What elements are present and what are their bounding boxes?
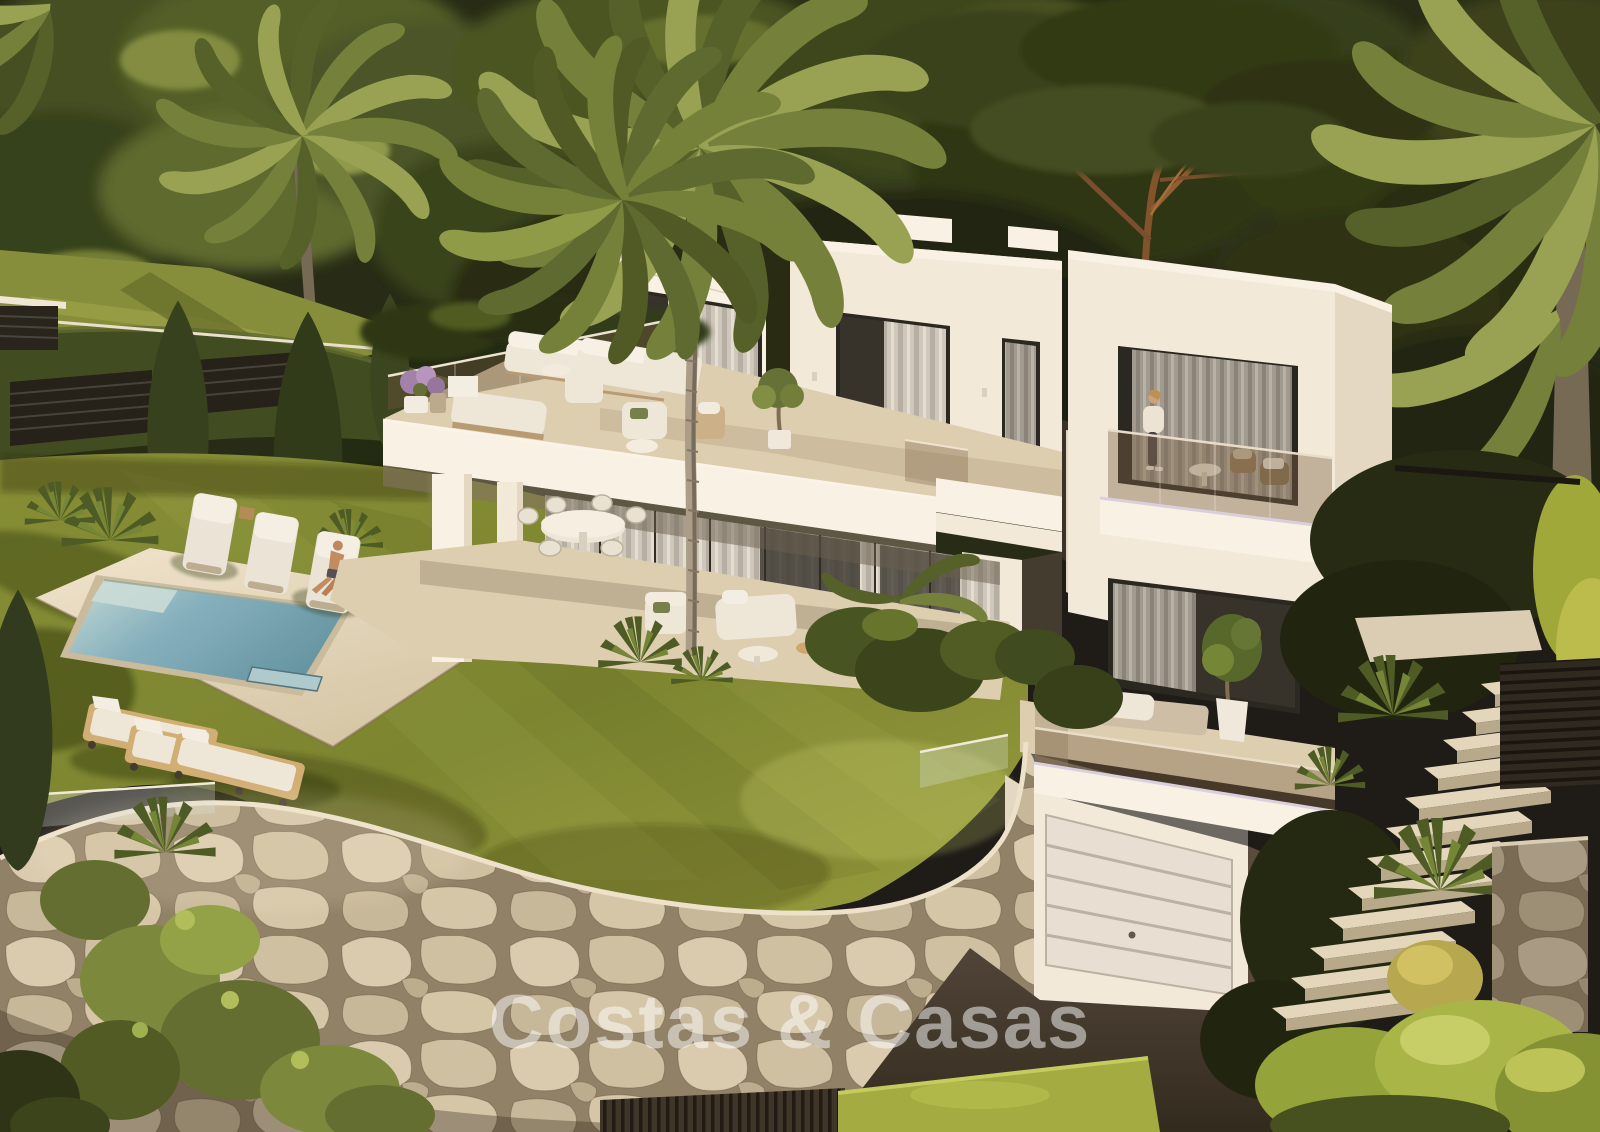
scene-canvas: Costas & Casas — [0, 0, 1600, 1132]
vignette — [0, 0, 1600, 1132]
watermark-text: Costas & Casas — [489, 980, 1092, 1065]
villa-render: Costas & Casas — [0, 0, 1600, 1132]
